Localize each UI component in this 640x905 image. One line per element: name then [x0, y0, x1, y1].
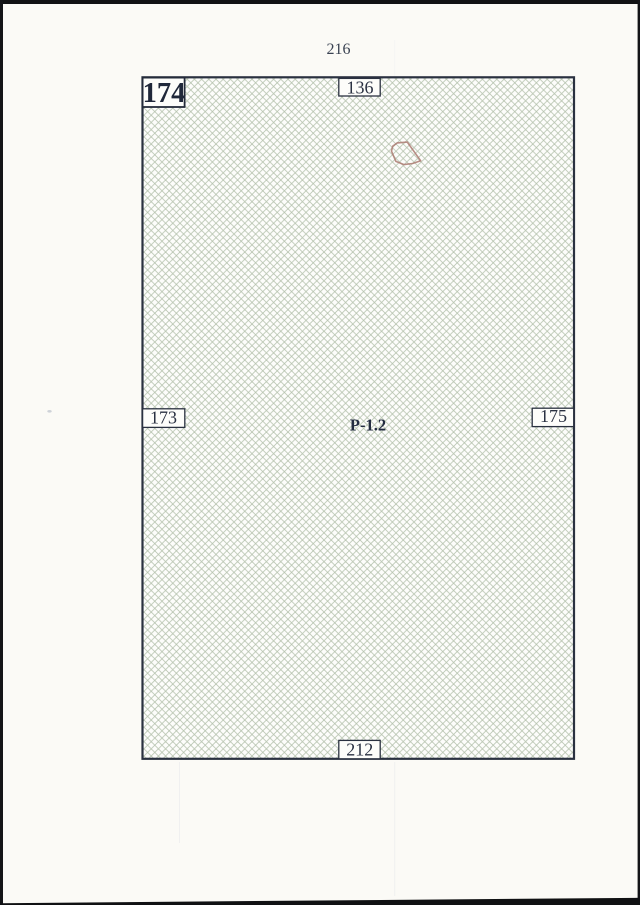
svg-text:174: 174	[143, 78, 186, 109]
svg-text:216: 216	[327, 41, 351, 58]
svg-text:P-1.2: P-1.2	[350, 416, 386, 435]
svg-text:175: 175	[540, 406, 567, 426]
svg-text:212: 212	[346, 739, 373, 759]
svg-text:173: 173	[150, 408, 177, 428]
svg-text:136: 136	[347, 78, 374, 98]
